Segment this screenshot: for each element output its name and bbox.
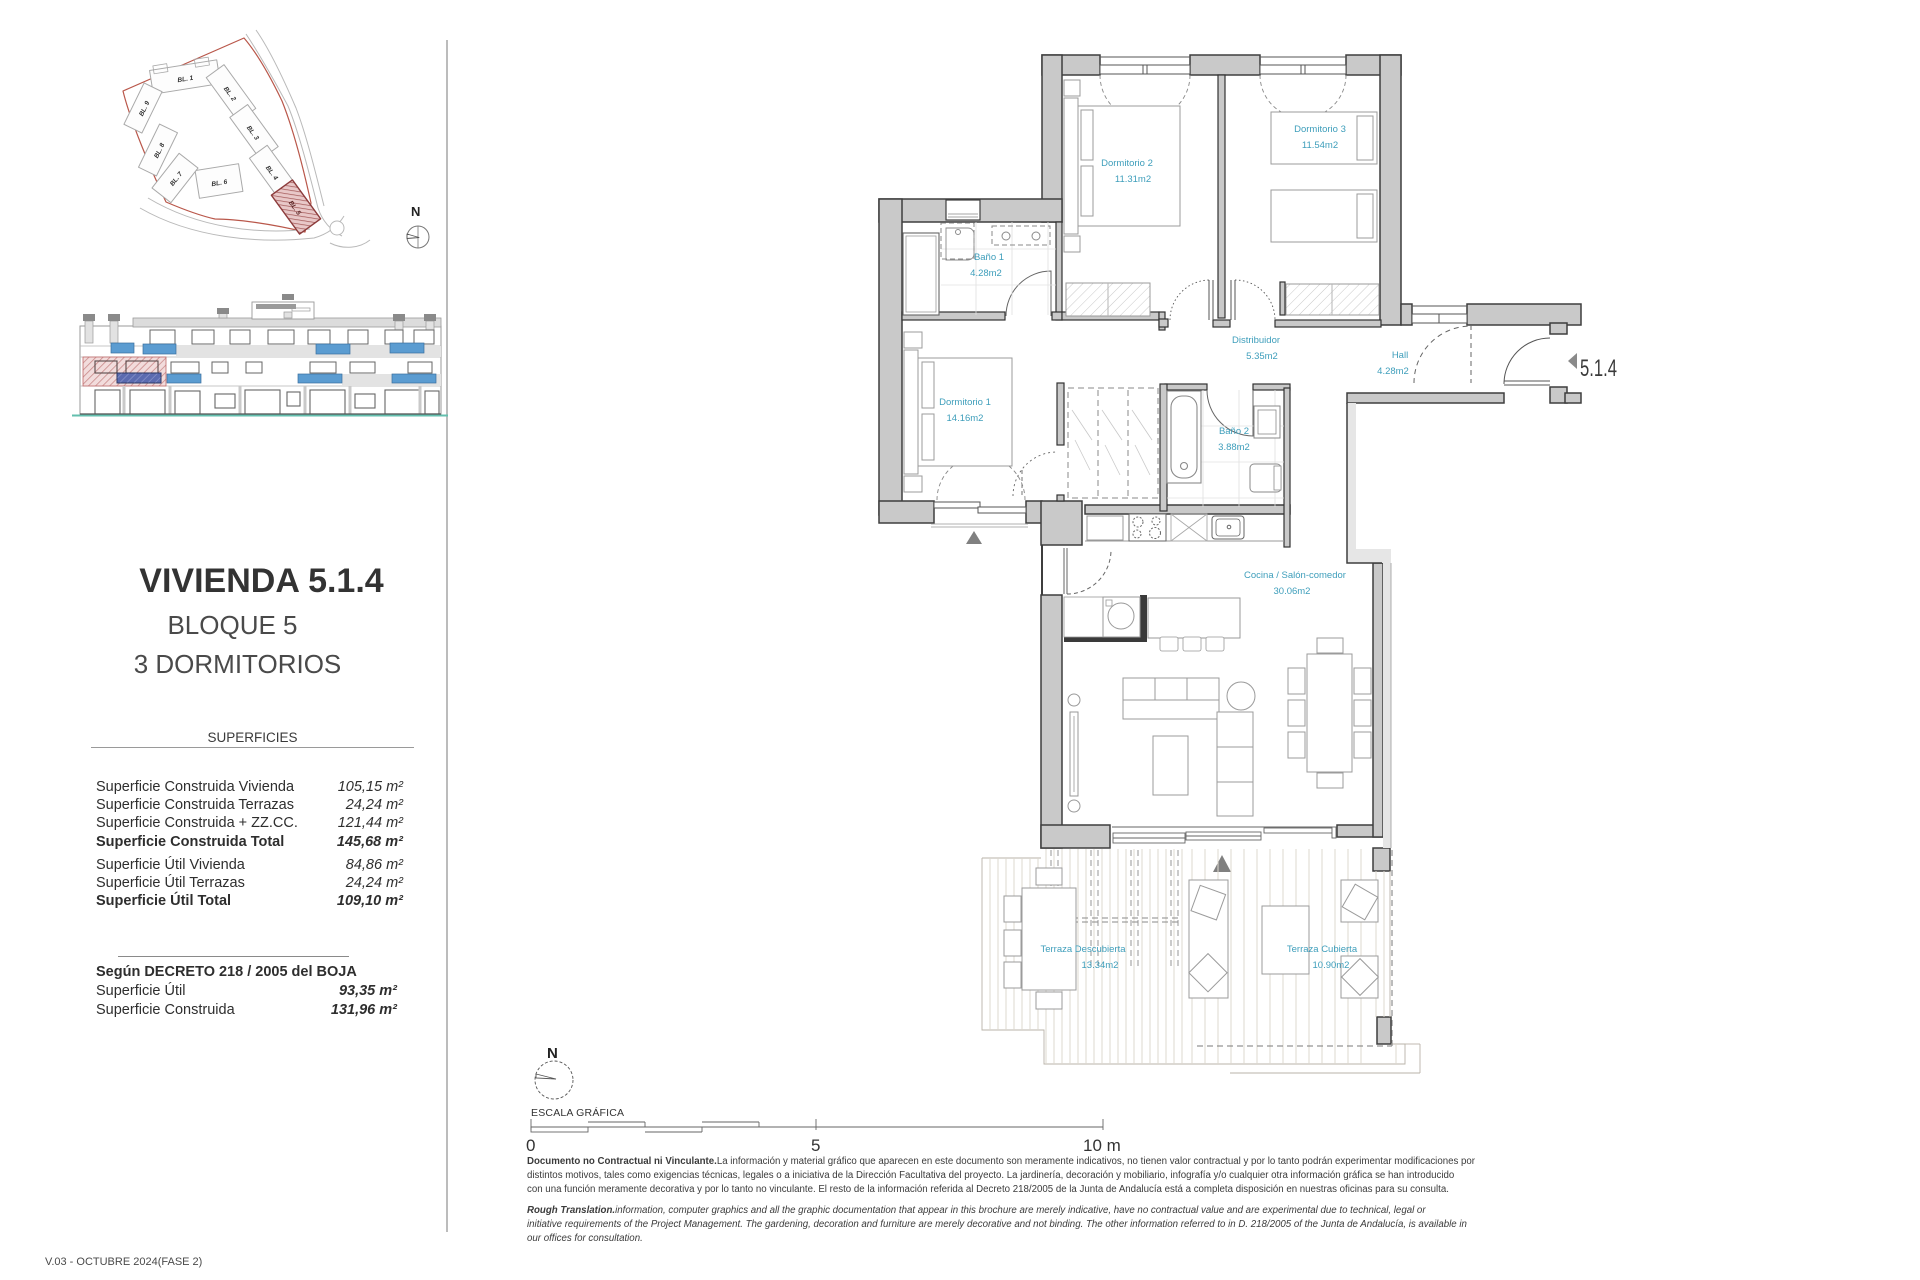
svg-text:5.1.4: 5.1.4 (1580, 355, 1617, 382)
svg-text:Cocina / Salón-comedor: Cocina / Salón-comedor (1244, 570, 1346, 581)
svg-text:Terraza Descubierta: Terraza Descubierta (1040, 944, 1126, 955)
svg-text:Baño 1: Baño 1 (974, 252, 1004, 263)
svg-text:10.90m2: 10.90m2 (1313, 960, 1350, 971)
svg-text:0: 0 (526, 1136, 535, 1155)
svg-text:14.16m2: 14.16m2 (947, 413, 984, 424)
svg-text:11.54m2: 11.54m2 (1302, 140, 1338, 151)
svg-text:11.31m2: 11.31m2 (1115, 174, 1151, 185)
svg-text:Distribuidor: Distribuidor (1232, 335, 1280, 346)
svg-text:Hall: Hall (1392, 350, 1408, 361)
svg-text:5.35m2: 5.35m2 (1246, 351, 1278, 362)
svg-text:4.28m2: 4.28m2 (970, 268, 1002, 279)
svg-text:ESCALA GRÁFICA: ESCALA GRÁFICA (531, 1106, 624, 1119)
svg-text:3.88m2: 3.88m2 (1218, 442, 1250, 453)
svg-text:Baño 2: Baño 2 (1219, 426, 1249, 437)
svg-text:Dormitorio 1: Dormitorio 1 (939, 397, 991, 408)
svg-text:Terraza Cubierta: Terraza Cubierta (1287, 944, 1358, 955)
svg-text:N: N (411, 204, 420, 219)
svg-text:13.34m2: 13.34m2 (1082, 960, 1119, 971)
svg-text:4.28m2: 4.28m2 (1377, 366, 1409, 377)
svg-text:N: N (547, 1045, 558, 1062)
svg-text:10 m: 10 m (1083, 1136, 1121, 1155)
svg-text:30.06m2: 30.06m2 (1274, 586, 1311, 597)
svg-text:Dormitorio 3: Dormitorio 3 (1294, 124, 1346, 135)
svg-text:5: 5 (811, 1136, 820, 1155)
svg-text:Dormitorio 2: Dormitorio 2 (1101, 158, 1153, 169)
